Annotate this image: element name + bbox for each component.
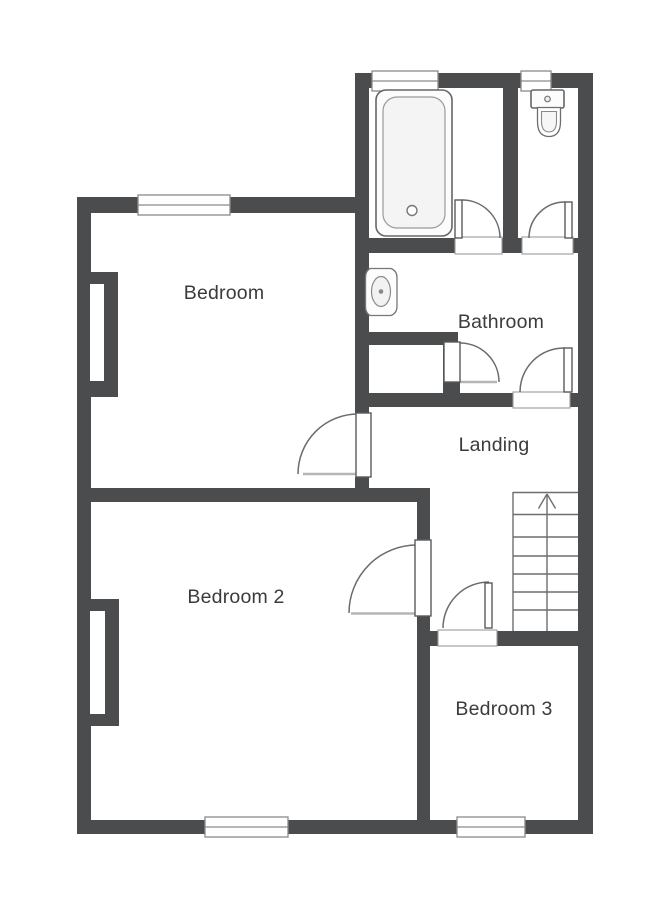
door-bedroom xyxy=(298,413,371,477)
window-bedroom-3 xyxy=(457,817,525,837)
door-bathroom-main xyxy=(513,348,572,408)
wall-segment xyxy=(77,197,138,213)
wall-segment xyxy=(288,820,457,834)
doors xyxy=(298,200,573,646)
wall-segment xyxy=(578,73,593,834)
window-bath xyxy=(372,71,438,91)
wall-segment xyxy=(77,488,430,502)
wash-basin xyxy=(366,269,398,316)
toilet-bowl-inner xyxy=(542,112,557,133)
label-bedroom-2: Bedroom 2 xyxy=(187,586,284,608)
toilet-button xyxy=(545,96,551,102)
staircase xyxy=(513,492,578,631)
wall-segment xyxy=(525,820,593,834)
wall-segment xyxy=(502,238,522,253)
label-landing: Landing xyxy=(459,434,530,456)
chimney-breast-bedroom-2 xyxy=(88,599,119,726)
bathtub-drain xyxy=(407,206,417,216)
window-wc xyxy=(521,71,551,91)
wall-segment xyxy=(417,488,430,540)
bathtub xyxy=(376,90,452,236)
door-wc xyxy=(522,202,573,254)
wall-segment xyxy=(417,616,430,834)
wall-segment xyxy=(230,197,355,213)
wall-segment xyxy=(570,393,593,407)
floor-plan-drawing: Bedroom Bathroom Landing Bedroom 2 Bedro… xyxy=(0,0,670,912)
label-bedroom: Bedroom xyxy=(184,282,265,304)
door-bedroom-2 xyxy=(349,540,431,616)
wall-segment xyxy=(503,88,518,238)
door-bedroom-3 xyxy=(438,582,497,646)
label-bathroom: Bathroom xyxy=(458,311,544,333)
toilet xyxy=(531,90,564,137)
chimney-breast-bedroom xyxy=(88,272,118,397)
wall-segment xyxy=(573,238,593,253)
window-bedroom-2 xyxy=(205,817,288,837)
wall-segment xyxy=(355,238,455,253)
window-bedroom xyxy=(138,195,230,215)
wall-segment xyxy=(77,820,205,834)
floor-plan: Bedroom Bathroom Landing Bedroom 2 Bedro… xyxy=(0,0,670,912)
door-bath-room xyxy=(455,200,502,254)
wall-segment xyxy=(369,393,513,407)
door-bathroom-inner xyxy=(444,342,499,382)
chimney-recess xyxy=(90,284,104,381)
label-bedroom-3: Bedroom 3 xyxy=(455,698,552,720)
chimney-recess xyxy=(90,611,105,714)
basin-drain xyxy=(379,289,384,294)
